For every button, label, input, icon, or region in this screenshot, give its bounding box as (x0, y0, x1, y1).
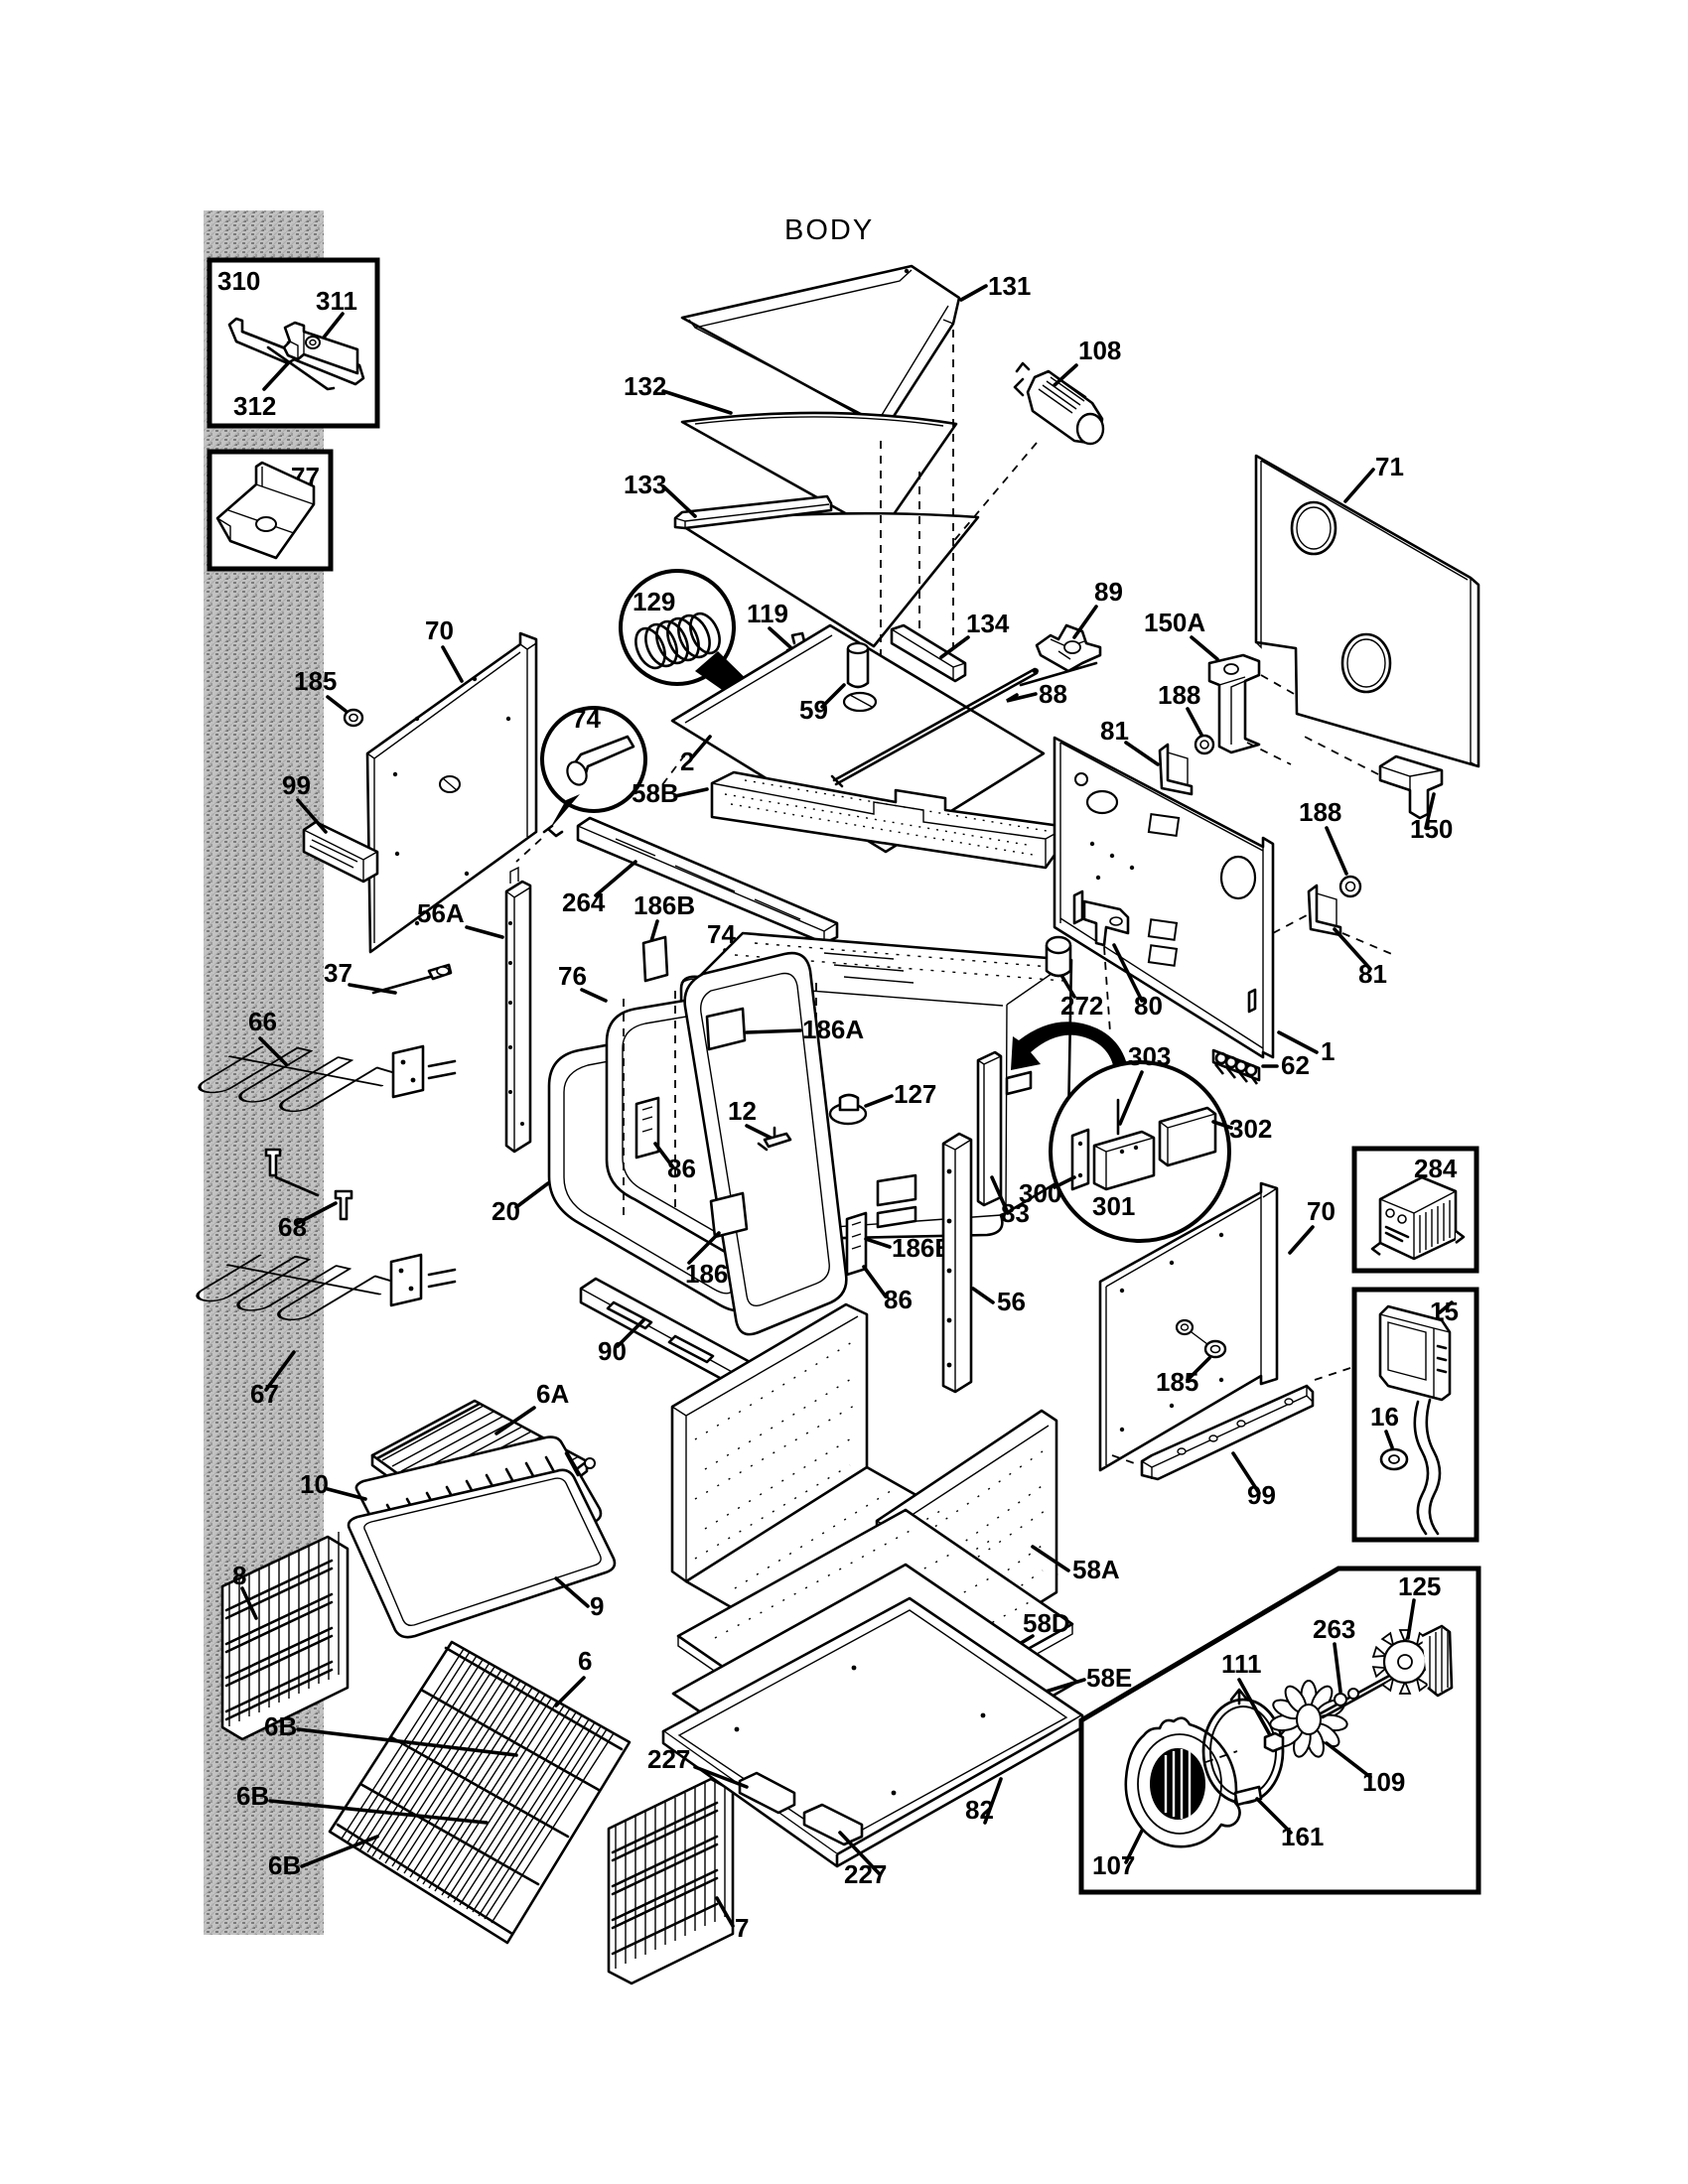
svg-text:301: 301 (1092, 1191, 1135, 1221)
svg-text:127: 127 (894, 1079, 936, 1109)
svg-text:109: 109 (1362, 1767, 1405, 1797)
svg-text:311: 311 (316, 286, 357, 316)
svg-text:58E: 58E (1086, 1663, 1132, 1693)
svg-text:37: 37 (324, 958, 352, 988)
svg-text:186B: 186B (633, 890, 695, 920)
svg-text:74: 74 (572, 704, 601, 734)
svg-text:125: 125 (1398, 1571, 1441, 1601)
svg-text:1: 1 (1321, 1036, 1335, 1066)
svg-text:150: 150 (1410, 814, 1453, 844)
svg-text:56: 56 (997, 1287, 1026, 1316)
svg-text:20: 20 (492, 1196, 520, 1226)
svg-text:303: 303 (1128, 1041, 1171, 1071)
svg-text:129: 129 (633, 587, 675, 616)
svg-text:81: 81 (1100, 716, 1129, 746)
svg-text:86: 86 (884, 1285, 913, 1314)
svg-text:8: 8 (232, 1561, 246, 1590)
svg-text:58D: 58D (1023, 1608, 1070, 1638)
svg-text:76: 76 (558, 961, 587, 991)
svg-text:88: 88 (1039, 679, 1067, 709)
svg-text:86: 86 (667, 1154, 696, 1183)
svg-text:263: 263 (1313, 1614, 1355, 1644)
svg-text:310: 310 (217, 266, 260, 296)
svg-text:150A: 150A (1144, 608, 1205, 637)
svg-text:186: 186 (685, 1259, 728, 1289)
svg-text:BODY: BODY (784, 214, 874, 246)
svg-text:132: 132 (624, 371, 666, 401)
svg-text:6: 6 (578, 1646, 592, 1676)
svg-text:161: 161 (1281, 1822, 1324, 1851)
svg-text:62: 62 (1281, 1050, 1310, 1080)
svg-text:12: 12 (728, 1096, 757, 1126)
svg-text:188: 188 (1158, 680, 1200, 710)
svg-text:186A: 186A (802, 1015, 864, 1044)
svg-text:89: 89 (1094, 577, 1123, 607)
svg-text:302: 302 (1229, 1114, 1272, 1144)
svg-text:6B: 6B (236, 1781, 269, 1811)
svg-text:68: 68 (278, 1212, 307, 1242)
svg-text:9: 9 (590, 1591, 604, 1621)
svg-text:111: 111 (1221, 1649, 1262, 1679)
svg-text:6A: 6A (536, 1379, 569, 1409)
svg-text:272: 272 (1060, 991, 1103, 1021)
svg-text:16: 16 (1370, 1402, 1399, 1432)
svg-text:133: 133 (624, 470, 666, 499)
svg-text:67: 67 (250, 1379, 279, 1409)
svg-text:185: 185 (294, 666, 337, 696)
svg-text:66: 66 (248, 1007, 277, 1036)
svg-text:81: 81 (1358, 959, 1387, 989)
svg-text:312: 312 (233, 391, 276, 421)
svg-text:134: 134 (966, 609, 1010, 638)
svg-text:131: 131 (988, 271, 1031, 301)
svg-text:71: 71 (1375, 452, 1404, 481)
svg-text:119: 119 (747, 599, 788, 628)
svg-text:70: 70 (425, 615, 454, 645)
svg-text:185: 185 (1156, 1367, 1198, 1397)
svg-text:188: 188 (1299, 797, 1341, 827)
svg-text:59: 59 (799, 695, 828, 725)
svg-text:7: 7 (735, 1913, 749, 1943)
svg-text:300: 300 (1019, 1178, 1061, 1208)
svg-text:56A: 56A (417, 898, 465, 928)
svg-text:99: 99 (282, 770, 311, 800)
svg-text:58A: 58A (1072, 1555, 1120, 1584)
svg-text:6B: 6B (268, 1850, 301, 1880)
svg-text:10: 10 (300, 1469, 329, 1499)
svg-text:2: 2 (680, 747, 694, 776)
svg-text:227: 227 (647, 1744, 690, 1774)
svg-text:70: 70 (1307, 1196, 1336, 1226)
svg-text:108: 108 (1078, 336, 1121, 365)
svg-text:6B: 6B (264, 1711, 297, 1741)
